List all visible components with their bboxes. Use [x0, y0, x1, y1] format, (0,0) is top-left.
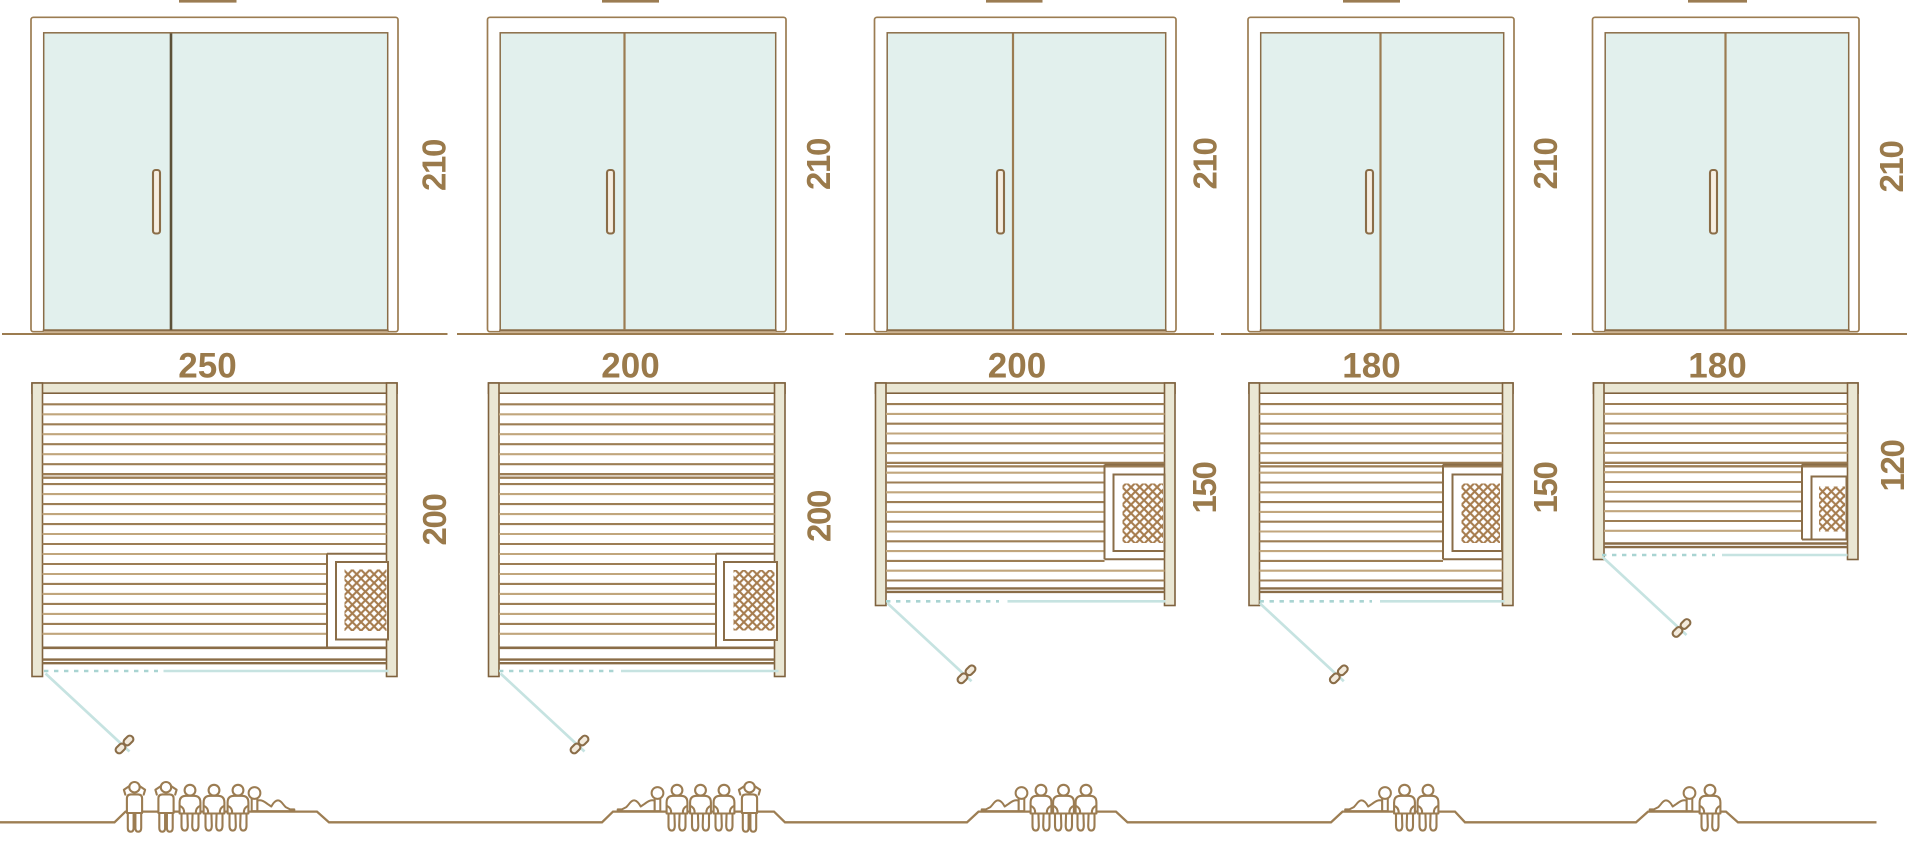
- svg-text:150: 150: [1186, 463, 1223, 514]
- svg-text:200: 200: [601, 347, 659, 386]
- svg-text:120: 120: [1874, 441, 1911, 492]
- svg-text:210: 210: [800, 139, 837, 190]
- svg-text:200: 200: [416, 495, 453, 546]
- svg-text:200: 200: [801, 491, 838, 542]
- svg-text:210: 210: [1527, 139, 1564, 190]
- svg-text:250: 250: [178, 347, 236, 386]
- svg-text:200: 200: [988, 347, 1046, 386]
- svg-text:150: 150: [1527, 463, 1564, 514]
- svg-text:180: 180: [1342, 347, 1400, 386]
- svg-text:210: 210: [416, 140, 453, 191]
- svg-text:210: 210: [1187, 139, 1224, 190]
- svg-text:180: 180: [1688, 347, 1746, 386]
- svg-text:210: 210: [1873, 142, 1910, 193]
